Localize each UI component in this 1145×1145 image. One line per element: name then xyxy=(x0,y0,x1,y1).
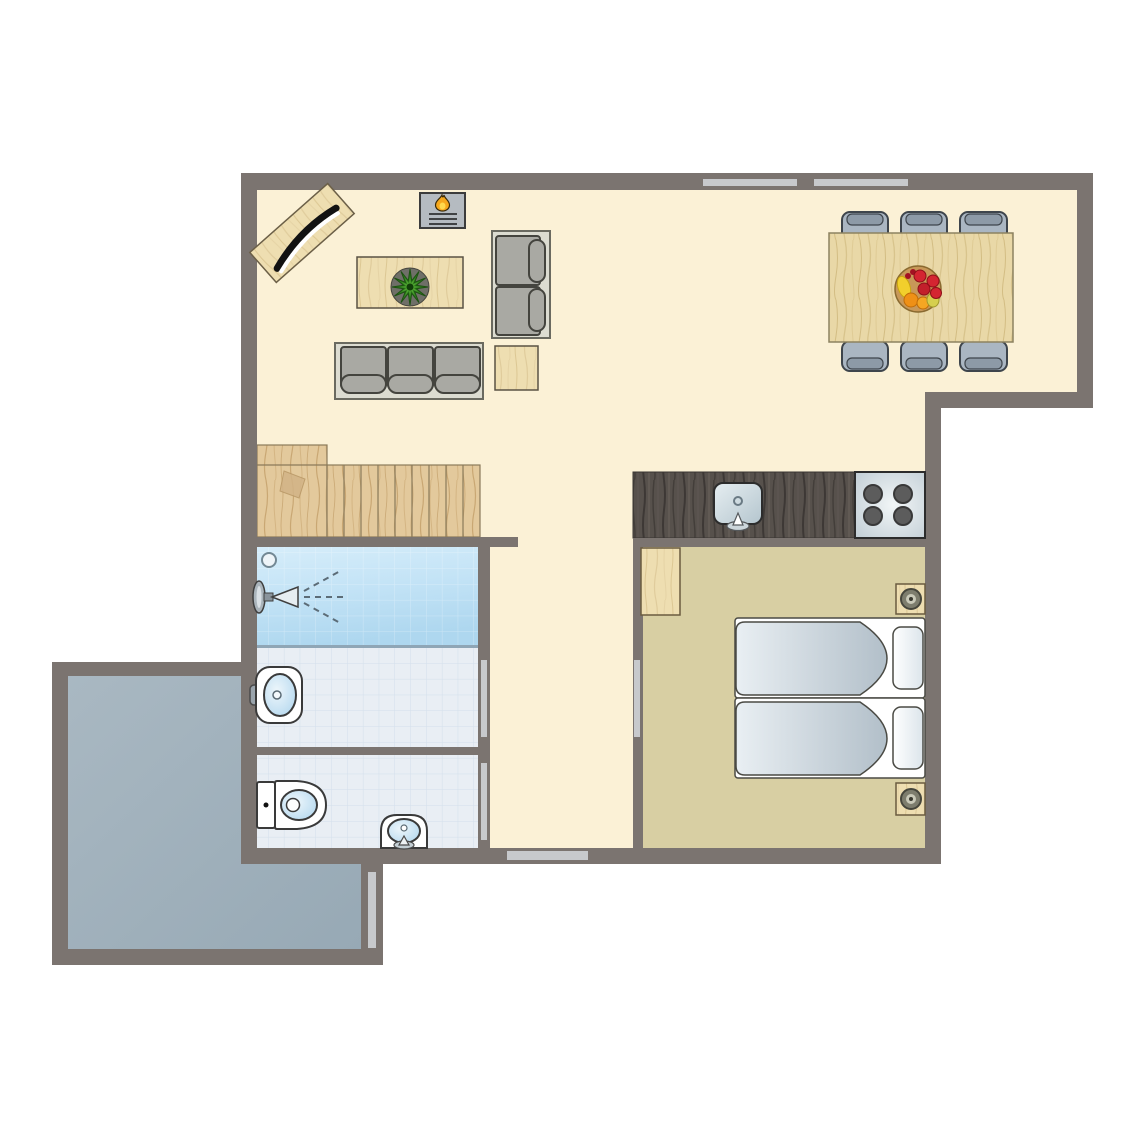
window-top-left xyxy=(703,179,797,186)
sofa-pillow-2 xyxy=(388,375,433,393)
bed-1-pillow xyxy=(893,627,923,689)
terrace-door xyxy=(368,872,376,948)
floor-plan-canvas xyxy=(0,0,1145,1145)
dining-chair-3-back xyxy=(965,214,1002,225)
dining-chair-6-back xyxy=(965,358,1002,369)
wall-under-stairs xyxy=(241,537,518,547)
plan-layer xyxy=(52,173,1093,965)
toilet-2-button xyxy=(264,803,269,808)
wall-left xyxy=(241,173,257,864)
wall-bathroom-divider xyxy=(257,747,478,755)
toilet-2-drain xyxy=(287,799,300,812)
dining-chair-1-back xyxy=(847,214,883,225)
stove-burner-4 xyxy=(894,507,912,525)
shower-head-inner xyxy=(257,586,262,608)
wall-right xyxy=(1077,173,1093,408)
wall-terrace-bottom xyxy=(52,949,383,965)
fruit-apple-1 xyxy=(914,270,926,282)
stove-burner-1 xyxy=(864,485,882,503)
floor-plan xyxy=(0,0,1145,1145)
toilet-1-drain xyxy=(273,691,281,699)
wall-bedroom-right xyxy=(925,392,941,864)
front-door xyxy=(507,851,588,860)
wall-terrace-top xyxy=(52,662,245,676)
lamp-top-center xyxy=(909,597,913,601)
wardrobe xyxy=(641,548,680,615)
bed-2-duvet xyxy=(736,702,887,775)
wall-terrace-left xyxy=(52,662,68,965)
fruit-apple-4 xyxy=(931,288,942,299)
fruit-orange-1 xyxy=(904,293,918,307)
shower-drain xyxy=(262,553,276,567)
bathroom-sink-drain xyxy=(401,825,407,831)
stove xyxy=(855,472,925,538)
dining-chair-5-back xyxy=(906,358,942,369)
wall-top xyxy=(241,173,1093,190)
fruit-grape-1 xyxy=(905,273,911,279)
wall-kitchen-bedroom xyxy=(633,538,925,547)
bathroom-door xyxy=(481,660,487,737)
stove-burner-3 xyxy=(864,507,882,525)
bedroom-door xyxy=(634,660,640,737)
bed-1-duvet xyxy=(736,622,887,695)
loveseat-pillow-2 xyxy=(529,289,545,331)
bed-2-pillow xyxy=(893,707,923,769)
window-top-right xyxy=(814,179,908,186)
lamp-bottom-center xyxy=(909,797,913,801)
plant-center xyxy=(407,284,414,291)
sofa-pillow-3 xyxy=(435,375,480,393)
loveseat-pillow-1 xyxy=(529,240,545,282)
side-table xyxy=(495,346,538,390)
dining-chair-2-back xyxy=(906,214,942,225)
fruit-apple-3 xyxy=(918,283,930,295)
wall-bottom xyxy=(241,848,941,864)
toilet-room-door xyxy=(481,763,487,840)
wall-dining-jog xyxy=(925,392,1093,408)
fireplace-flame-core xyxy=(440,203,446,210)
stairs-treads xyxy=(327,465,480,537)
stove-burner-2 xyxy=(894,485,912,503)
sofa-pillow-1 xyxy=(341,375,386,393)
dining-chair-4-back xyxy=(847,358,883,369)
shower-screen-line xyxy=(257,645,478,648)
